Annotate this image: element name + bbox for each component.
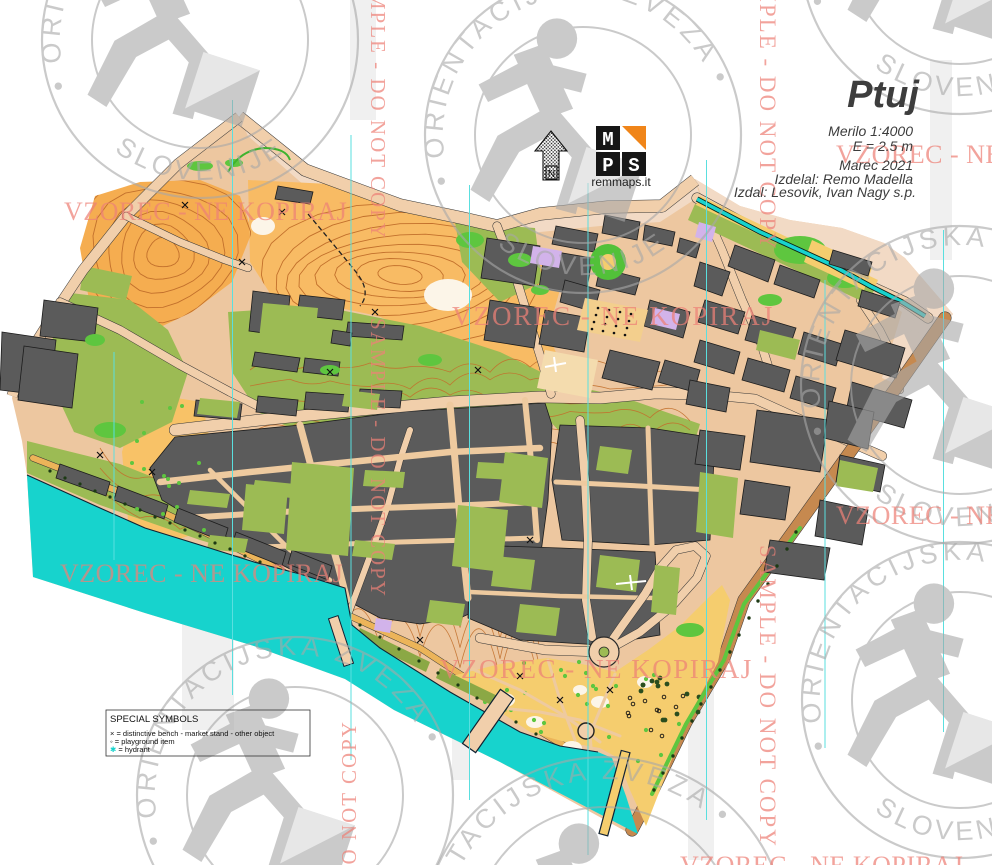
svg-text:remmaps.it: remmaps.it: [591, 175, 651, 189]
svg-text:VZOREC - NE KOPIRAJ: VZOREC - NE KOPIRAJ: [836, 501, 992, 530]
svg-text:VZOREC - NE KOPIRAJ: VZOREC - NE KOPIRAJ: [64, 197, 347, 226]
svg-text:S: S: [628, 155, 639, 177]
svg-text:M: M: [602, 129, 613, 151]
svg-text:P: P: [602, 155, 613, 177]
svg-text:SPECIAL SYMBOLS: SPECIAL SYMBOLS: [110, 714, 198, 725]
svg-text:E = 2.5 m: E = 2.5 m: [853, 138, 914, 154]
svg-text:VZOREC - NE KOPIRAJ: VZOREC - NE KOPIRAJ: [440, 654, 753, 684]
svg-text:VZOREC - NE KOPIRAJ: VZOREC - NE KOPIRAJ: [60, 559, 343, 588]
svg-text:Merilo 1:4000: Merilo 1:4000: [828, 123, 913, 139]
svg-text:SAMPLE - DO NOT COPY: SAMPLE - DO NOT COPY: [755, 545, 780, 848]
svg-text:Izdal: Lesovik, Ivan Nagy s.p.: Izdal: Lesovik, Ivan Nagy s.p.: [734, 184, 916, 200]
svg-text:SAMPLE - DO NOT COPY: SAMPLE - DO NOT COPY: [755, 0, 780, 251]
svg-text:SAMPLE - DO NOT COPY: SAMPLE - DO NOT COPY: [337, 720, 361, 865]
svg-text:VZOREC - NE KOPIRAJ: VZOREC - NE KOPIRAJ: [452, 301, 774, 331]
svg-text:N: N: [548, 169, 555, 180]
svg-text:SAMPLE - DO NOT COPY: SAMPLE - DO NOT COPY: [366, 318, 390, 598]
svg-text:SAMPLE - DO NOT COPY: SAMPLE - DO NOT COPY: [366, 0, 390, 240]
svg-text:✱ = hydrant: ✱ = hydrant: [110, 745, 151, 754]
svg-text:VZOREC - NE KOPIRAJ: VZOREC - NE KOPIRAJ: [680, 851, 963, 865]
svg-text:Ptuj: Ptuj: [847, 74, 920, 116]
